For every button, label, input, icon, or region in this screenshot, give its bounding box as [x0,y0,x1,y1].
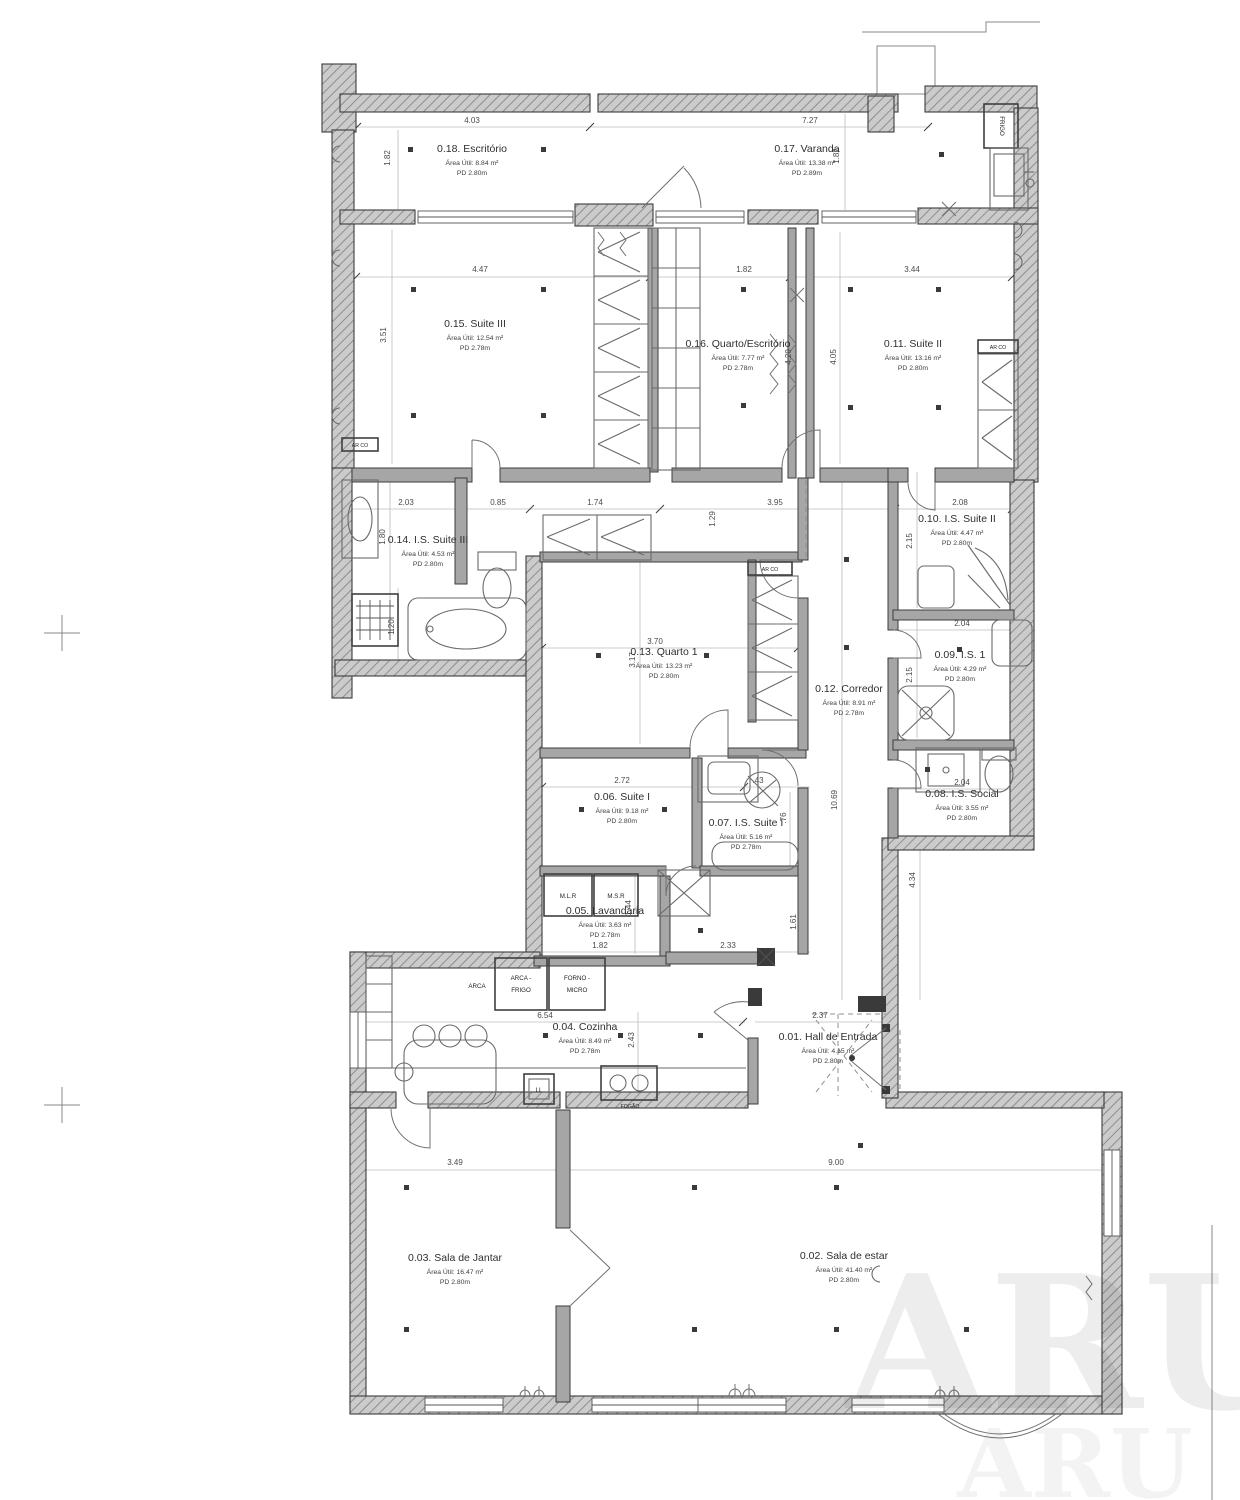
door-jantar [391,1108,430,1148]
svg-text:0.10. I.S. Suite II: 0.10. I.S. Suite II [918,513,996,525]
svg-text:Área Útil: 13.38 m²: Área Útil: 13.38 m² [779,158,836,167]
room-label-is-suite1: 0.07. I.S. Suite I Área Útil: 5.16 m² PD… [709,817,784,851]
svg-text:PD 2.80m: PD 2.80m [649,673,680,680]
svg-text:Área Útil: 8.84 m²: Área Útil: 8.84 m² [446,158,500,167]
svg-text:AR CO: AR CO [352,443,368,449]
dishwasher-label: LL [536,1087,543,1094]
dim-label: 1.74 [587,498,603,507]
svg-text:PD 2.80m: PD 2.80m [413,561,444,568]
svg-text:ARU: ARU [956,1409,1193,1500]
svg-text:PD 2.78m: PD 2.78m [723,365,754,372]
door-quarto1 [690,710,728,748]
door-jantar-estar [570,1230,610,1306]
svg-text:PD 2.80m: PD 2.80m [947,815,978,822]
room-label-lavandaria: 0.05. Lavandaria Área Útil: 3.63 m² PD 2… [566,905,644,939]
dim-label: 2.04 [954,619,970,628]
door-varanda [642,166,701,208]
svg-text:0.11. Suite II: 0.11. Suite II [884,338,942,350]
entrance-lintel [858,996,886,1012]
dim-label: 7.27 [802,116,818,125]
svg-text:Área Útil: 4.53 m²: Área Útil: 4.53 m² [402,549,456,558]
svg-text:0.12. Corredor: 0.12. Corredor [815,683,883,695]
dim-label: 3.49 [447,1158,463,1167]
dimension-lines [336,114,1120,1174]
svg-text:0.09. I.S. 1: 0.09. I.S. 1 [935,649,986,661]
room-label-is-suite2: 0.10. I.S. Suite II Área Útil: 4.47 m² P… [918,513,996,547]
svg-text:Área Útil: 12.54 m²: Área Útil: 12.54 m² [447,333,504,342]
room-label-suite1: 0.06. Suite I Área Útil: 9.18 m² PD 2.80… [594,791,650,825]
dim-label: 1.61 [789,914,798,930]
dim-label: 2.08 [952,498,968,507]
svg-text:0.03. Sala de Jantar: 0.03. Sala de Jantar [408,1252,502,1264]
svg-text:Área Útil: 13.23 m²: Área Útil: 13.23 m² [636,661,693,670]
svg-text:0.18. Escritório: 0.18. Escritório [437,143,507,155]
room-label-cozinha: 0.04. Cozinha Área Útil: 8.49 m² PD 2.78… [553,1021,618,1055]
svg-text:PD 2.78m: PD 2.78m [731,844,762,851]
svg-text:Área Útil: 8.49 m²: Área Útil: 8.49 m² [559,1036,613,1045]
svg-text:PD 2.80m: PD 2.80m [945,676,976,683]
svg-text:PD 2.78m: PD 2.78m [460,345,491,352]
drawing-sheet: 4.03 1.82 7.27 1.82 4.47 3.51 1.82 4.20 … [0,0,1240,1500]
svg-text:PD 2.78m: PD 2.78m [570,1048,601,1055]
floor-plan: 4.03 1.82 7.27 1.82 4.47 3.51 1.82 4.20 … [0,0,1240,1500]
room-label-escritorio: 0.18. Escritório Área Útil: 8.84 m² PD 2… [437,143,507,177]
svg-text:PD 2.78m: PD 2.78m [834,710,865,717]
wardrobe-suite2 [978,354,1018,468]
corridor-pillar [757,948,775,966]
exterior-walls [322,64,1122,1414]
dim-label: 3.44 [904,265,920,274]
svg-text:PD 2.80m: PD 2.80m [898,365,929,372]
svg-text:PD 2.80m: PD 2.80m [942,540,973,547]
door-is-suite2 [908,482,935,510]
dim-label: 3.70 [647,637,663,646]
room-label-suite2: 0.11. Suite II Área Útil: 13.16 m² PD 2.… [884,338,942,372]
dim-label: 1.82 [592,941,608,950]
frigo-label: FRIGO [998,116,1005,136]
room-label-quarto-escritorio: 0.16. Quarto/Escritório Área Útil: 7.77 … [685,338,790,372]
dim-label: 1.20 [387,619,396,635]
svg-text:PD 2.80m: PD 2.80m [813,1058,844,1065]
room-label-hall: 0.01. Hall de Entrada Área Útil: 4.15 m²… [779,1031,878,1065]
forno-micro-label: MICRO [567,987,588,994]
svg-text:Área Útil: 3.63 m²: Área Útil: 3.63 m² [579,920,633,929]
svg-text:Área Útil: 7.77 m²: Área Útil: 7.77 m² [712,353,766,362]
svg-text:Área Útil: 16.47 m²: Área Útil: 16.47 m² [427,1267,484,1276]
dim-label: 2.72 [614,776,630,785]
toilet [478,552,516,608]
svg-text:Área Útil: 4.15 m²: Área Útil: 4.15 m² [802,1046,856,1055]
svg-text:AR CO: AR CO [990,345,1006,351]
dim-label: 4.20 [784,349,793,365]
wardrobe-suite3 [594,228,648,468]
dim-label: .43 [752,776,764,785]
svg-text:Área Útil: 3.55 m²: Área Útil: 3.55 m² [936,803,990,812]
svg-text:0.04. Cozinha: 0.04. Cozinha [553,1021,618,1033]
room-label-varanda: 0.17. Varanda Área Útil: 13.38 m² PD 2.8… [774,143,839,177]
svg-text:0.05. Lavandaria: 0.05. Lavandaria [566,905,644,917]
dim-label: 3.51 [379,327,388,343]
svg-text:Área Útil: 13.16 m²: Área Útil: 13.16 m² [885,353,942,362]
dim-label: 1.82 [383,150,392,166]
svg-text:AR CO: AR CO [762,567,778,573]
arca-label: ARCA [468,983,486,990]
forno-micro-label: FORNO - [564,975,590,982]
dim-label: 6.54 [537,1011,553,1020]
svg-text:0.07. I.S. Suite I: 0.07. I.S. Suite I [709,817,784,829]
svg-text:PD 2.78m: PD 2.78m [590,932,621,939]
dim-label: 9.00 [828,1158,844,1167]
dim-label: 2.15 [905,667,914,683]
dim-label: 0.85 [490,498,506,507]
dryer-label: M.S.R [607,893,625,900]
svg-text:0.14. I.S. Suite III: 0.14. I.S. Suite III [388,534,469,546]
svg-text:PD 2.89m: PD 2.89m [792,170,823,177]
room-label-corredor: 0.12. Corredor Área Útil: 8.91 m² PD 2.7… [815,683,883,717]
room-label-quarto1: 0.13. Quarto 1 Área Útil: 13.23 m² PD 2.… [630,646,697,680]
svg-text:0.16. Quarto/Escritório: 0.16. Quarto/Escritório [685,338,790,350]
svg-text:Área Útil: 4.29 m²: Área Útil: 4.29 m² [934,664,988,673]
room-label-is1: 0.09. I.S. 1 Área Útil: 4.29 m² PD 2.80m [934,649,988,683]
ac-unit: AR CO [978,340,1018,353]
door-suite3 [472,440,500,468]
room-label-suite3: 0.15. Suite III Área Útil: 12.54 m² PD 2… [444,318,506,352]
watermark: ARU ARU [844,1234,1240,1500]
svg-text:Área Útil: 4.47 m²: Área Útil: 4.47 m² [931,528,985,537]
svg-text:0.06. Suite I: 0.06. Suite I [594,791,650,803]
room-label-sala-jantar: 0.03. Sala de Jantar Área Útil: 16.47 m²… [408,1252,502,1286]
svg-text:0.17. Varanda: 0.17. Varanda [774,143,839,155]
shower-is2 [918,545,1010,608]
registration-mark [44,615,80,1123]
svg-text:0.15. Suite III: 0.15. Suite III [444,318,506,330]
door-cozinha [714,1002,748,1040]
svg-text:Área Útil: 8.91 m²: Área Útil: 8.91 m² [823,698,877,707]
dim-label: 10.69 [830,789,839,810]
dim-label: 4.03 [464,116,480,125]
hob-label: FOGÃO [621,1103,640,1110]
arca-frigo-label: ARCA - [511,975,532,982]
svg-text:PD 2.80m: PD 2.80m [457,170,488,177]
svg-text:Área Útil: 9.18 m²: Área Útil: 9.18 m² [596,806,650,815]
dim-label: 1.80 [378,529,387,545]
svg-text:Área Útil: 5.16 m²: Área Útil: 5.16 m² [720,832,774,841]
dim-label: 3.95 [767,498,783,507]
dim-label: 4.34 [908,872,917,888]
arca-frigo-label: FRIGO [511,987,531,994]
door-is-social [893,760,921,788]
dim-label: 2.03 [398,498,414,507]
dim-label: 2.43 [627,1032,636,1048]
door-pillar [748,988,762,1006]
room-labels: 0.18. Escritório Área Útil: 8.84 m² PD 2… [388,143,999,1286]
dim-label: 2.15 [905,533,914,549]
dim-label: 4.05 [829,349,838,365]
svg-text:0.01. Hall de Entrada: 0.01. Hall de Entrada [779,1031,878,1043]
dim-label: 2.04 [954,778,970,787]
dim-label: 1.82 [736,265,752,274]
dim-label: 2.37 [812,1011,828,1020]
dim-label: 4.47 [472,265,488,274]
svg-text:0.08. I.S. Social: 0.08. I.S. Social [925,788,999,800]
svg-text:0.13. Quarto 1: 0.13. Quarto 1 [630,646,697,658]
dim-label: 1.29 [708,511,717,527]
room-label-is-social: 0.08. I.S. Social Área Útil: 3.55 m² PD … [925,788,999,822]
svg-text:PD 2.80m: PD 2.80m [607,818,638,825]
interior-walls [352,228,1014,1402]
svg-text:PD 2.80m: PD 2.80m [440,1279,471,1286]
bathtub [408,598,526,660]
radiator-hooks [332,146,1022,1282]
dim-label: 2.33 [720,941,736,950]
washer-label: M.L.R [560,893,577,900]
